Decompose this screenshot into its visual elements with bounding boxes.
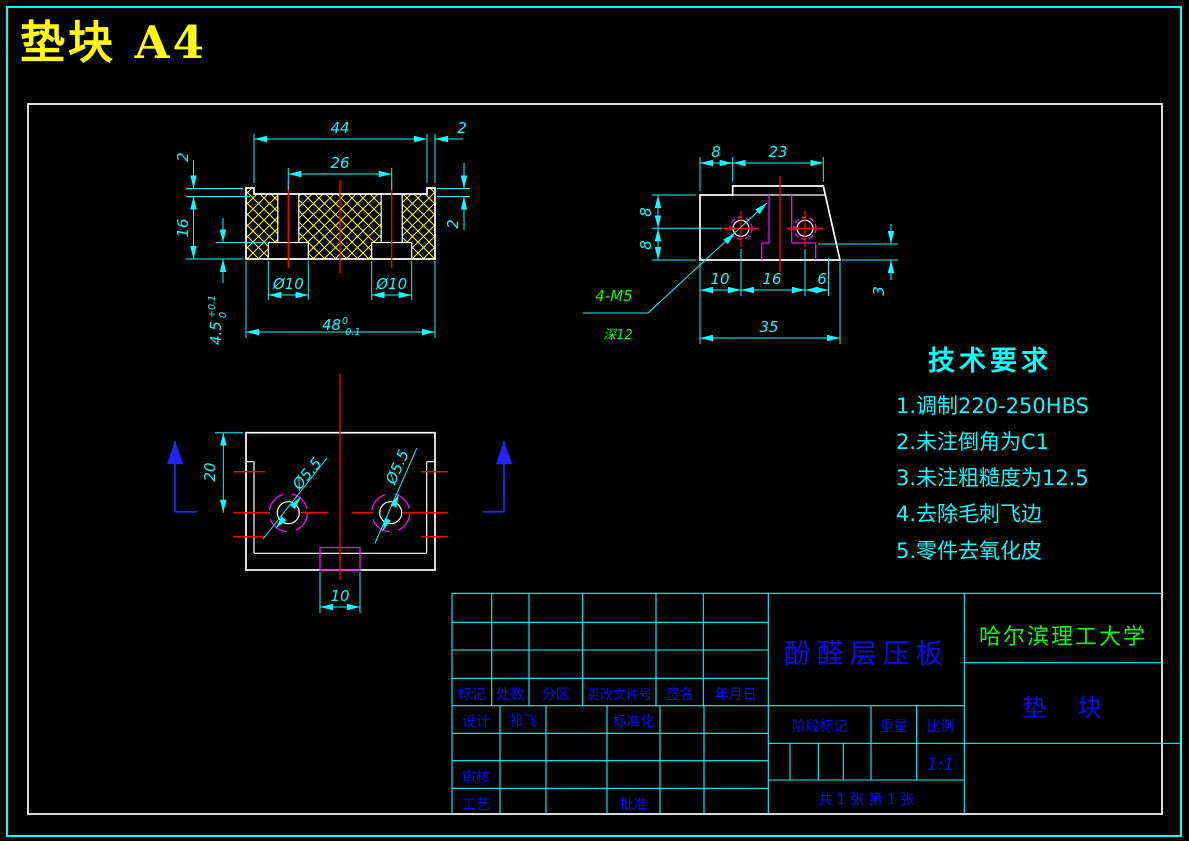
- svg-text:-0.1: -0.1: [342, 327, 361, 338]
- tb-scale-value: 1:1: [927, 755, 954, 775]
- dim-3: 3: [870, 286, 888, 296]
- tb-scale-label: 比例: [927, 719, 955, 735]
- tb-material: 酚醛层压板: [784, 639, 949, 670]
- tech-req-item-1: 1.调制220-250HBS: [896, 394, 1089, 418]
- dim-2-left: 2: [174, 152, 192, 162]
- tb-header-signature: 签名: [666, 686, 694, 703]
- tech-req-item-2: 2.未注倒角为C1: [896, 430, 1049, 454]
- thread-callout: 4-M5: [595, 287, 632, 305]
- tb-part-name: 垫 块: [1022, 694, 1114, 722]
- tb-header-count: 处数: [496, 687, 524, 703]
- drawing-background: [0, 0, 1189, 841]
- svg-text:0: 0: [218, 312, 229, 318]
- tech-req-item-4: 4.去除毛刺飞边: [896, 502, 1042, 526]
- svg-text:+0.1: +0.1: [207, 295, 218, 318]
- tb-university: 哈尔滨理工大学: [979, 625, 1147, 650]
- cad-drawing-canvas: 垫块 A4 44 2 26 2 16 2 Ø10 Ø10 4.5 +: [0, 0, 1189, 841]
- tech-req-item-5: 5.零件去氧化皮: [896, 539, 1042, 563]
- dim-6: 6: [817, 270, 827, 288]
- dim-23: 23: [768, 143, 787, 161]
- dim-16: 16: [174, 218, 192, 237]
- dim-10-notch: 10: [330, 587, 349, 605]
- dim-2-top: 2: [457, 119, 467, 137]
- tb-sheet-info: 共 1 张 第 1 张: [818, 791, 914, 808]
- dim-10: 10: [710, 270, 729, 288]
- dim-16: 16: [762, 270, 781, 288]
- tb-approve-label: 批准: [620, 797, 648, 813]
- tb-standardization-label: 标准化: [613, 714, 655, 730]
- tb-header-change-doc: 更改文件号: [587, 688, 652, 703]
- tb-stage-mark-label: 阶段标记: [792, 719, 848, 735]
- dim-2-right: 2: [444, 219, 462, 229]
- dim-8-lower: 8: [637, 240, 655, 250]
- tech-req-item-3: 3.未注粗糙度为12.5: [896, 466, 1089, 490]
- tb-process-label: 工艺: [462, 797, 490, 813]
- dim-35: 35: [759, 318, 778, 336]
- dim-8-upper: 8: [637, 207, 655, 217]
- tb-header-zone: 分区: [542, 687, 570, 703]
- svg-text:4.5: 4.5: [207, 321, 225, 345]
- dim-26: 26: [330, 154, 349, 172]
- dim-44: 44: [330, 119, 349, 137]
- thread-depth-callout: 深12: [603, 328, 633, 343]
- tb-review-label: 审核: [462, 770, 490, 786]
- tech-req-title: 技术要求: [928, 346, 1052, 377]
- tb-header-date: 年月日: [715, 687, 757, 703]
- dim-8-top: 8: [711, 143, 721, 161]
- tb-designer-name: 祁飞: [509, 714, 537, 730]
- tb-weight-label: 重量: [880, 719, 908, 735]
- sheet-title: 垫块 A4: [20, 16, 207, 69]
- dim-dia10-left: Ø10: [272, 275, 304, 293]
- svg-text:0: 0: [342, 316, 348, 327]
- tb-header-mark: 标记: [458, 687, 486, 703]
- svg-text:48: 48: [322, 316, 341, 334]
- dim-dia10-right: Ø10: [375, 275, 407, 293]
- tb-design-label: 设计: [462, 714, 490, 730]
- dim-20: 20: [201, 462, 219, 481]
